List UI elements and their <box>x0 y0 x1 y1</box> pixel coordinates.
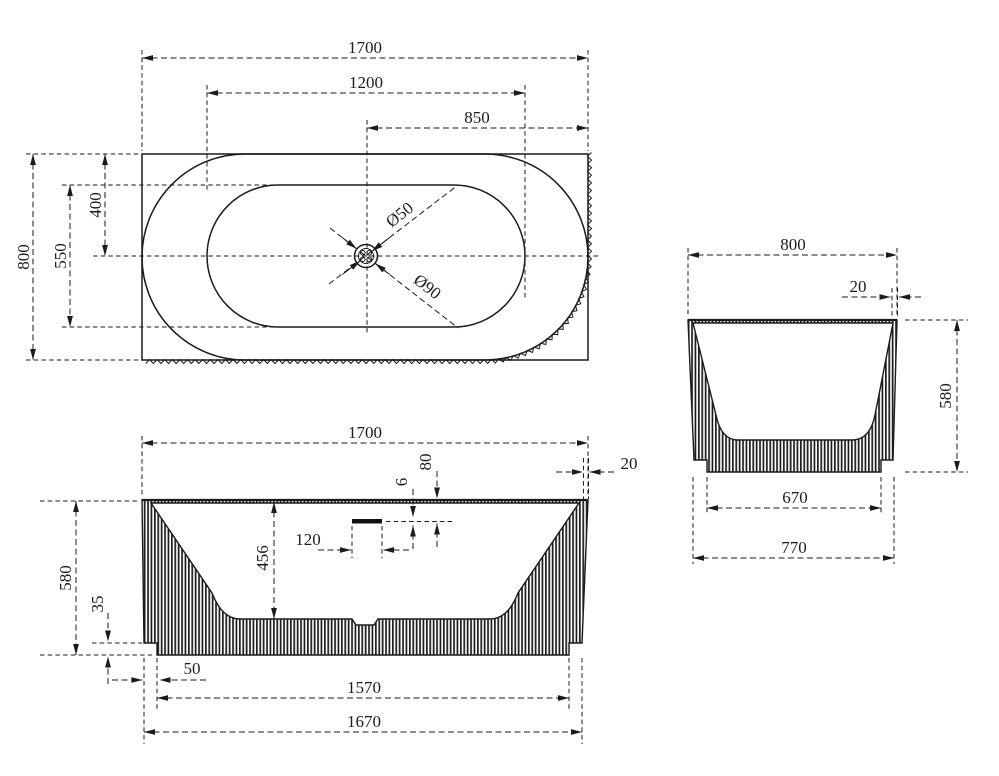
dim-top-length-inner: 1200 <box>349 73 383 92</box>
drain-arrow <box>372 238 390 252</box>
dim-plinth-inset: 50 <box>184 659 201 678</box>
dim-top-drain-from-back: 400 <box>86 192 105 218</box>
dim-top-width-inner: 550 <box>51 243 70 269</box>
drawing-canvas: 1700 1200 850 800 550 400 Ø50 Ø90 1700 2 <box>0 0 999 776</box>
dim-top-width-overall: 800 <box>14 244 33 270</box>
overflow-slot <box>352 519 382 524</box>
front-view: 1700 20 80 6 120 456 580 35 50 1570 1670 <box>40 423 638 744</box>
dim-drain-hole: Ø50 <box>382 198 417 231</box>
dim-top-length-overall: 1700 <box>348 38 382 57</box>
dim-side-plinth-width: 670 <box>782 488 808 507</box>
dim-front-rim-thickness: 20 <box>621 454 638 473</box>
drain-arrow <box>342 261 360 275</box>
dim-drain-recess: Ø90 <box>410 270 445 303</box>
dim-side-rim-thickness: 20 <box>850 277 867 296</box>
drain-dia50-leader <box>329 185 458 284</box>
dim-front-height-overall: 580 <box>56 565 75 591</box>
top-extension-lines <box>26 50 600 360</box>
dim-overflow-slot: 6 <box>392 478 411 487</box>
dim-overflow-width: 120 <box>295 530 321 549</box>
bathtub-technical-drawing: 1700 1200 850 800 550 400 Ø50 Ø90 1700 2 <box>0 0 999 776</box>
dim-overflow-from-rim: 80 <box>416 454 435 471</box>
side-tub-basin <box>693 323 893 440</box>
fluted-edge-guide <box>142 153 590 362</box>
dim-plinth-length: 1570 <box>347 678 381 697</box>
dim-side-width-overall: 800 <box>780 235 806 254</box>
dim-top-drain-to-end: 850 <box>464 108 490 127</box>
dim-side-base-width: 770 <box>781 538 807 557</box>
dim-base-length: 1670 <box>347 712 381 731</box>
dim-front-length-overall: 1700 <box>348 423 382 442</box>
dim-plinth-height: 35 <box>88 596 107 613</box>
side-view: 800 20 580 670 770 <box>688 235 968 564</box>
dim-depth-inner: 456 <box>253 545 272 571</box>
drain-arrow <box>342 238 356 249</box>
top-view: 1700 1200 850 800 550 400 Ø50 Ø90 <box>14 38 600 364</box>
drain-arrow <box>375 264 389 275</box>
dim-side-height-overall: 580 <box>936 383 955 409</box>
